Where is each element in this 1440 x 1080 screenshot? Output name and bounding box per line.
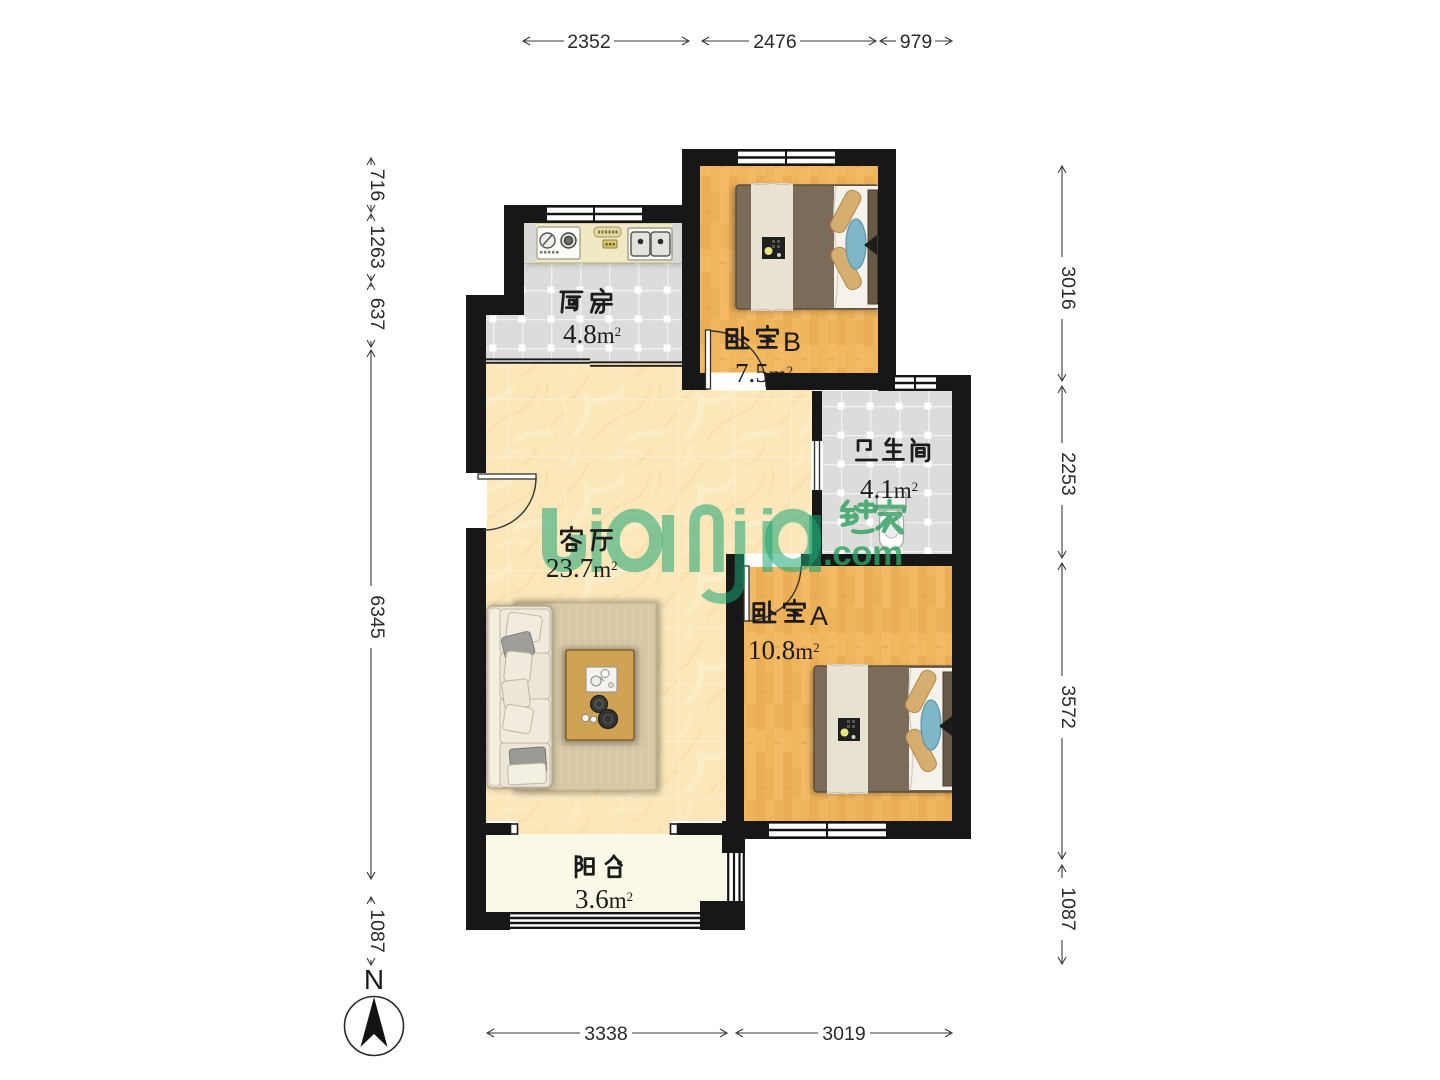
svg-text:4.8m2: 4.8m2 [563, 319, 621, 349]
svg-text:3572: 3572 [1057, 685, 1079, 728]
svg-text:2253: 2253 [1057, 452, 1079, 495]
svg-text:979: 979 [900, 31, 933, 53]
svg-text:23.7m2: 23.7m2 [546, 553, 618, 583]
svg-text:3016: 3016 [1057, 266, 1079, 309]
svg-text:2352: 2352 [567, 31, 610, 53]
svg-text:1263: 1263 [366, 225, 388, 268]
svg-text:.com: .com [823, 534, 903, 573]
svg-text:7.5m2: 7.5m2 [735, 358, 793, 388]
svg-text:3338: 3338 [584, 1023, 627, 1045]
svg-text:3.6m2: 3.6m2 [575, 884, 633, 914]
svg-text:637: 637 [366, 298, 388, 331]
svg-text:10.8m2: 10.8m2 [748, 635, 820, 665]
svg-text:716: 716 [366, 169, 388, 202]
svg-text:A: A [810, 601, 828, 631]
svg-text:6345: 6345 [366, 595, 388, 639]
svg-text:1087: 1087 [366, 909, 388, 952]
svg-text:N: N [364, 964, 384, 995]
svg-text:B: B [783, 327, 801, 357]
svg-text:3019: 3019 [822, 1023, 865, 1045]
svg-text:2476: 2476 [753, 31, 796, 53]
svg-text:4.1m2: 4.1m2 [860, 474, 918, 504]
svg-text:1087: 1087 [1057, 887, 1079, 930]
